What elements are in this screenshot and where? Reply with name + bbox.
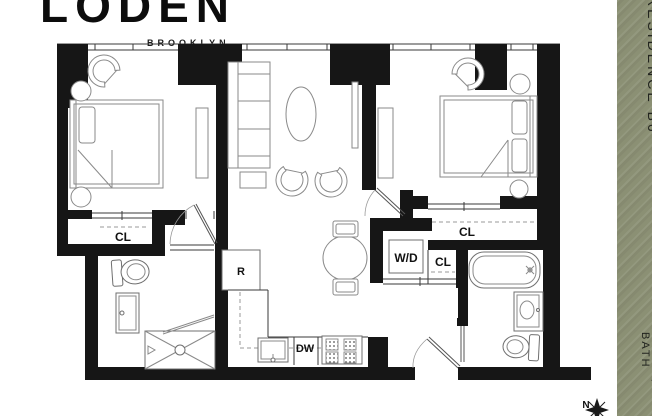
tv <box>352 82 358 148</box>
sidebar: RESIDENCE B6 2 BED | 2 BATH <box>617 0 652 416</box>
nightstand <box>71 81 91 101</box>
refrigerator-label: R <box>237 266 245 278</box>
coffee-table <box>286 87 316 141</box>
dining-table <box>323 236 367 280</box>
pillow <box>512 101 527 134</box>
hall-closet-label: CL <box>435 255 451 269</box>
pillow <box>79 107 95 143</box>
door-swing <box>413 339 427 368</box>
dining-chair <box>333 221 358 237</box>
kitchen: R DW <box>222 221 368 365</box>
floorplan-page: LODEN BROOKLYN <box>0 0 652 416</box>
burner <box>326 352 338 363</box>
dishwasher-label: DW <box>296 343 315 355</box>
nightstand <box>71 187 91 207</box>
dresser <box>378 108 393 178</box>
bedroom-2 <box>365 51 537 216</box>
sofa <box>228 62 270 168</box>
side-table <box>240 172 266 188</box>
chair <box>313 167 350 200</box>
burner <box>344 352 356 363</box>
burner <box>326 339 338 350</box>
toilet <box>111 258 150 287</box>
nightstand <box>510 74 530 94</box>
closet-label: CL <box>115 230 131 244</box>
pillow <box>512 139 527 172</box>
floorplan-drawing: CL <box>0 0 652 416</box>
closet-label: CL <box>459 225 475 239</box>
entry-door <box>413 337 460 368</box>
residence-title: RESIDENCE B6 <box>626 0 652 135</box>
dining-chair <box>333 279 358 295</box>
door-swing <box>365 190 375 216</box>
door-leaf <box>375 190 403 216</box>
nightstand <box>510 180 528 198</box>
dresser <box>196 108 208 178</box>
burner <box>344 339 356 350</box>
bedroom-1-closet: CL <box>92 211 152 244</box>
washer-dryer-label: W/D <box>394 251 418 265</box>
compass: N <box>582 398 609 416</box>
shower-drain <box>175 345 185 355</box>
toilet <box>502 333 539 361</box>
door-leaf <box>427 339 458 368</box>
bathroom-2 <box>461 252 543 362</box>
door-leaf <box>194 205 215 244</box>
bed-bath-label: 2 BED | 2 BATH <box>628 332 652 416</box>
chair <box>273 166 310 199</box>
